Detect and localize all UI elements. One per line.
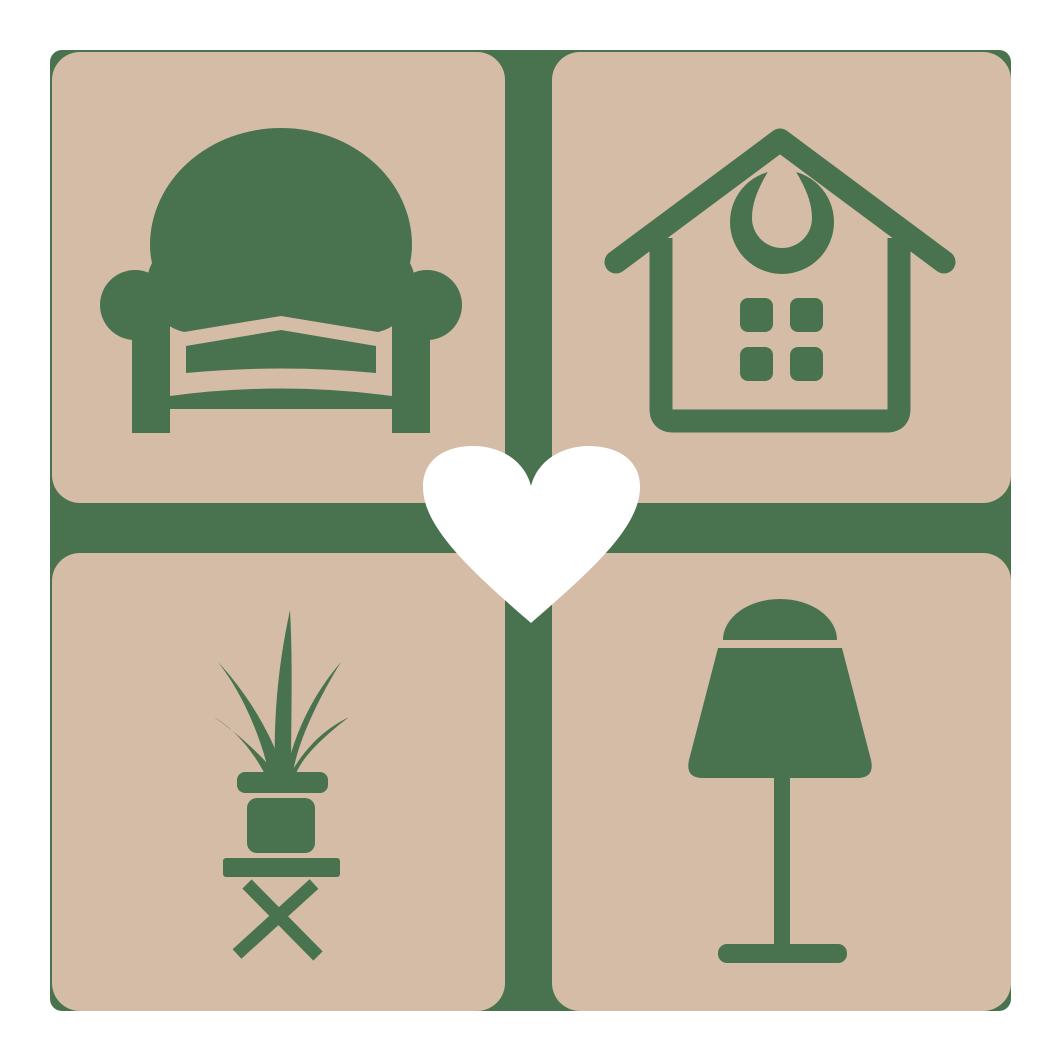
- lamp-shade: [688, 648, 871, 778]
- tile-armchair: [52, 52, 505, 503]
- tile-house: [552, 52, 1011, 503]
- house-window-bottom-left: [740, 347, 773, 381]
- plant-pot-rim: [237, 772, 328, 793]
- tile-table-lamp: [552, 553, 1011, 1011]
- lamp-base: [718, 944, 847, 963]
- house-window-top-right: [790, 298, 823, 332]
- logo-canvas: [0, 0, 1063, 1063]
- lamp-stem: [774, 775, 790, 950]
- house-window-top-left: [740, 298, 773, 332]
- plant-stool-top: [223, 858, 340, 877]
- armchair-right-leg: [392, 305, 430, 433]
- armchair-left-leg: [132, 305, 170, 433]
- plant-pot-body: [247, 798, 315, 853]
- house-tile-bg: [552, 52, 1011, 503]
- tile-potted-plant: [52, 553, 505, 1011]
- logo-image: [0, 0, 1063, 1063]
- house-window-bottom-right: [790, 347, 823, 381]
